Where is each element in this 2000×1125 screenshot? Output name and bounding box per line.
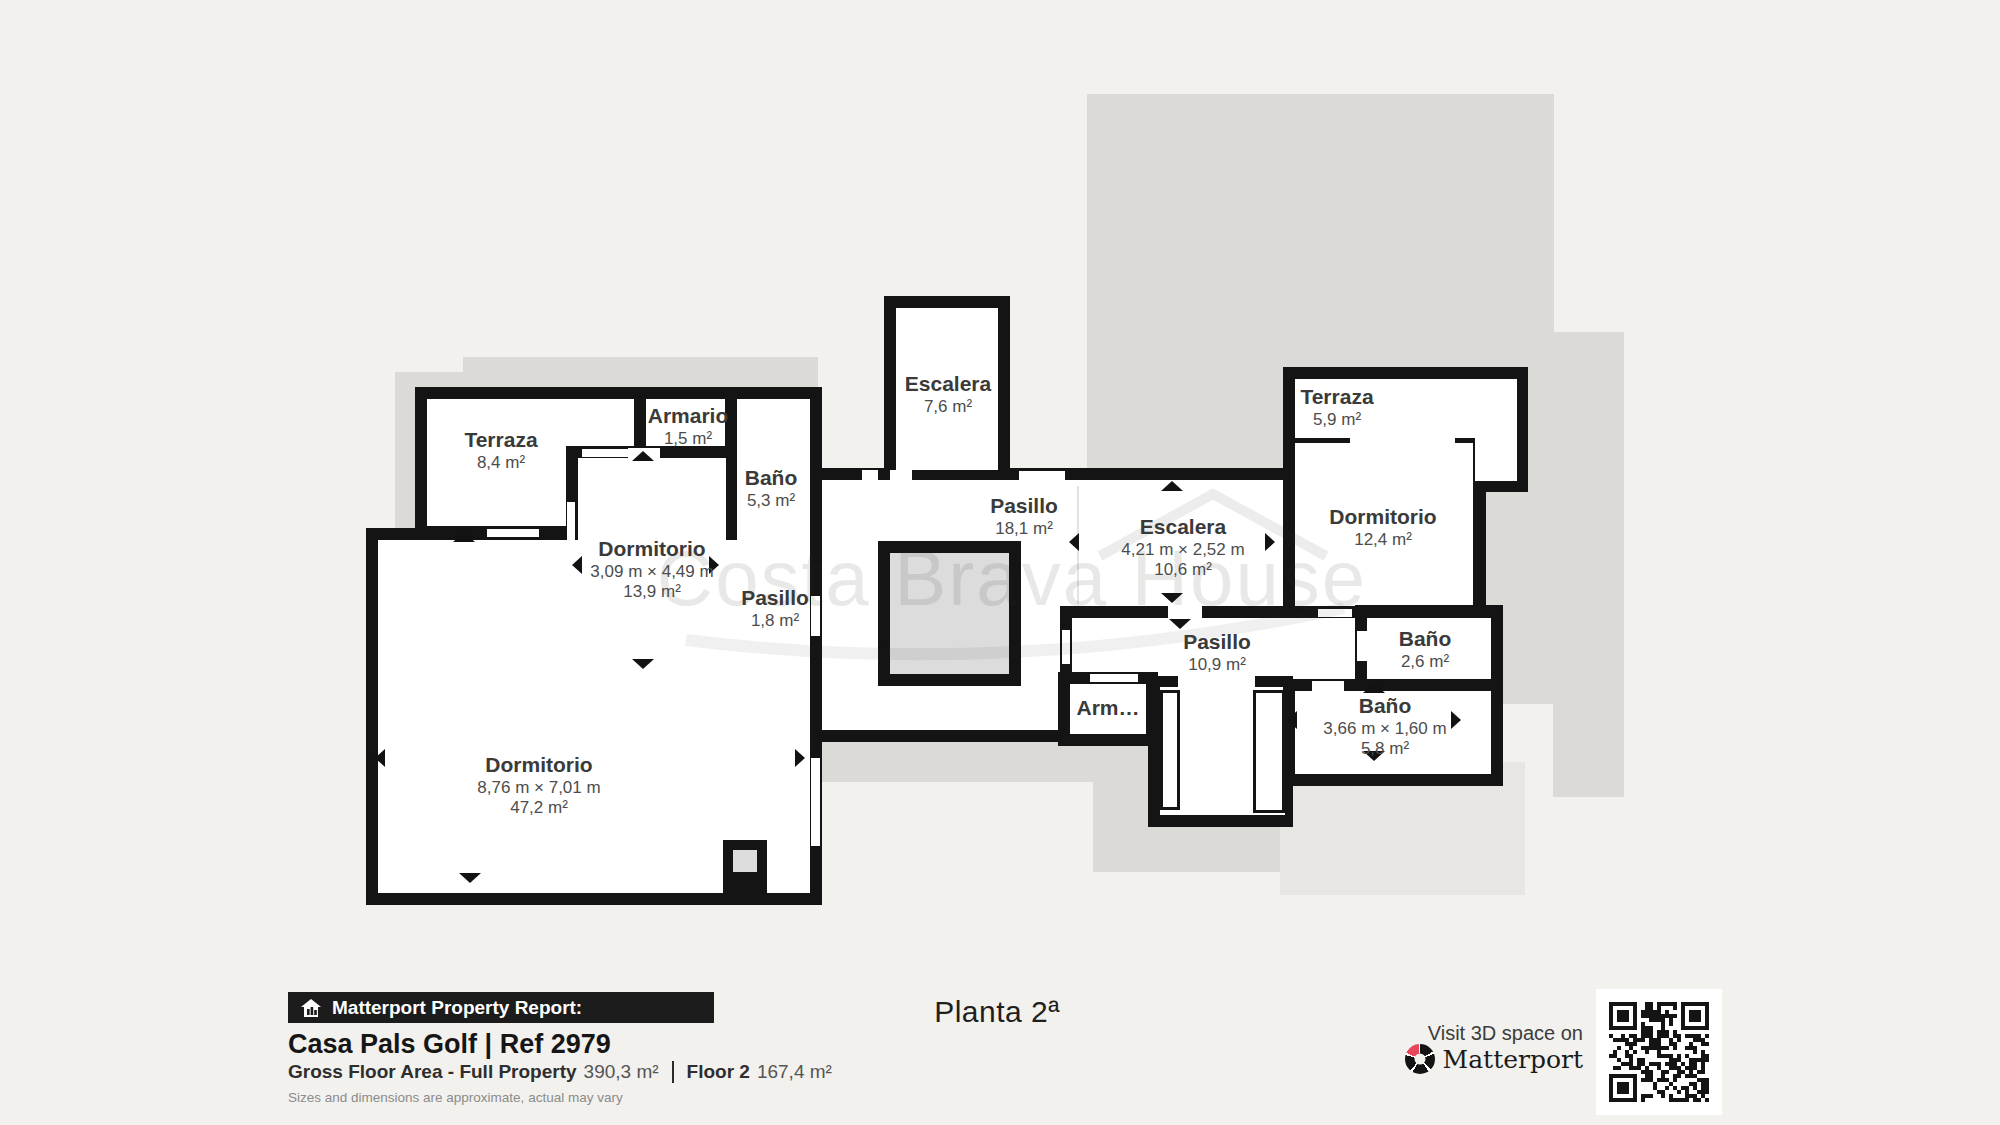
room-label-bano-right: Baño 3,66 m × 1,60 m 5,8 m²: [1323, 693, 1446, 760]
room-name: Terraza: [1300, 384, 1373, 410]
qr-module: [1661, 1094, 1665, 1098]
room-label-dormitorio-right: Dormitorio 12,4 m²: [1329, 504, 1436, 550]
room-area-value: 5,8 m²: [1323, 740, 1446, 761]
room-name: Dormitorio: [1329, 504, 1436, 530]
dimension-arrow-icon: [572, 556, 582, 574]
room-name: Baño: [745, 465, 798, 491]
door-arrow-icon: [632, 451, 654, 461]
qr-module: [1685, 1098, 1689, 1102]
door-arrow-icon: [632, 659, 654, 669]
dimension-arrow-icon: [1069, 533, 1079, 551]
matterport-logo-icon: [1405, 1044, 1435, 1074]
room-area-value: 10,9 m²: [1183, 654, 1251, 675]
room-area-value: 8,4 m²: [464, 452, 537, 473]
door-arrow-icon: [459, 873, 481, 883]
room-area-value: 7,6 m²: [905, 396, 991, 417]
room-label-pasillo-main: Pasillo 18,1 m²: [990, 493, 1058, 539]
qr-finder-icon: [1609, 1002, 1637, 1030]
closet-door-panel: [1253, 690, 1285, 813]
qr-finder-icon: [1681, 1002, 1709, 1030]
property-title: Casa Pals Golf | Ref 2979: [288, 1029, 611, 1060]
dimension-arrow-icon: [1161, 481, 1183, 491]
window-slit: [1062, 630, 1070, 664]
qr-module: [1673, 1046, 1677, 1050]
visit-3d-label: Visit 3D space on: [1380, 1022, 1583, 1045]
qr-module: [1677, 1090, 1681, 1094]
matterport-brand: Matterport: [1380, 1044, 1583, 1074]
qr-module: [1665, 1070, 1669, 1074]
floor-title: Planta 2ª: [934, 995, 1060, 1029]
floor-label: Floor 2: [687, 1061, 750, 1083]
room-name: Pasillo: [741, 585, 809, 611]
dimension-arrow-icon: [1363, 683, 1385, 693]
qr-module: [1673, 1006, 1677, 1010]
window-slit: [811, 758, 820, 846]
room-label-escalera-top: Escalera 7,6 m²: [905, 371, 991, 417]
floor-area-value: 167,4 m²: [757, 1061, 832, 1083]
door-opening: [1312, 681, 1344, 691]
room-name: Dormitorio: [477, 752, 600, 778]
room-label-pasillo-small: Pasillo 1,8 m²: [741, 585, 809, 631]
room-name: Baño: [1399, 626, 1452, 652]
room-dimensions: 4,21 m × 2,52 m: [1121, 540, 1244, 561]
matterport-wordmark: Matterport: [1443, 1045, 1583, 1074]
dimension-arrow-icon: [1287, 711, 1297, 729]
gray-underlay: [1553, 332, 1624, 797]
gross-area-value: 390,3 m²: [584, 1061, 659, 1083]
room-area-value: 1,5 m²: [648, 428, 729, 449]
dimension-arrow-icon: [1451, 711, 1461, 729]
qr-module: [1633, 1042, 1637, 1046]
room-name: Pasillo: [1183, 629, 1251, 655]
qr-module: [1617, 1066, 1621, 1070]
door-opening: [1357, 631, 1367, 661]
closet-door-panel: [1160, 690, 1180, 810]
qr-code: [1609, 1002, 1709, 1102]
door-arrow-icon: [1169, 619, 1191, 629]
door-opening: [1090, 674, 1138, 682]
qr-module: [1705, 1058, 1709, 1062]
room-area-value: 47,2 m²: [477, 799, 600, 820]
qr-module: [1673, 1078, 1677, 1082]
qr-module: [1677, 1038, 1681, 1042]
room-name: Pasillo: [990, 493, 1058, 519]
gross-area-label: Gross Floor Area - Full Property: [288, 1061, 577, 1083]
room-label-pasillo-right: Pasillo 10,9 m²: [1183, 629, 1251, 675]
matterport-house-icon: [300, 998, 322, 1018]
room-label-dormitorio-master: Dormitorio 8,76 m × 7,01 m 47,2 m²: [477, 752, 600, 819]
qr-module: [1665, 1046, 1669, 1050]
door-arrow-icon: [453, 532, 475, 542]
room-area-value: 12,4 m²: [1329, 529, 1436, 550]
report-bar-label: Matterport Property Report:: [332, 997, 582, 1019]
room-dimensions: 3,09 m × 4,49 m: [590, 562, 713, 583]
door-opening: [862, 470, 878, 480]
room-area-value: 2,6 m²: [1399, 651, 1452, 672]
qr-module: [1677, 1074, 1681, 1078]
room-name: Armario: [648, 403, 729, 429]
qr-module: [1617, 1046, 1621, 1050]
qr-module: [1673, 1014, 1677, 1018]
room-name: Baño: [1323, 693, 1446, 719]
room-area-terraza-right: [1475, 379, 1517, 481]
room-area-value: 5,9 m²: [1300, 409, 1373, 430]
room-label-escalera-central: Escalera 4,21 m × 2,52 m 10,6 m²: [1121, 514, 1244, 581]
window-slit: [386, 886, 720, 890]
report-header-bar: Matterport Property Report:: [288, 992, 714, 1023]
room-label-terraza-left: Terraza 8,4 m²: [464, 427, 537, 473]
room-label-armario-left: Armario 1,5 m²: [648, 403, 729, 449]
qr-module: [1693, 1050, 1697, 1054]
room-label-bano-left: Baño 5,3 m²: [745, 465, 798, 511]
qr-module: [1665, 1086, 1669, 1090]
room-name: Arm…: [1076, 695, 1139, 721]
window-slit: [1350, 437, 1455, 443]
disclaimer-text: Sizes and dimensions are approximate, ac…: [288, 1090, 623, 1105]
room-dimensions: 3,66 m × 1,60 m: [1323, 719, 1446, 740]
dimension-arrow-icon: [795, 749, 805, 767]
window-slit: [1019, 471, 1065, 480]
room-name: Escalera: [1121, 514, 1244, 540]
room-label-bano-small-right: Baño 2,6 m²: [1399, 626, 1452, 672]
chimney-void: [733, 850, 757, 872]
window-slit: [567, 628, 575, 676]
qr-module: [1633, 1050, 1637, 1054]
qr-module: [1705, 1034, 1709, 1038]
qr-module: [1669, 1022, 1673, 1026]
dimension-arrow-icon: [1265, 533, 1275, 551]
room-area-value: 1,8 m²: [741, 610, 809, 631]
qr-module: [1697, 1098, 1701, 1102]
qr-module: [1649, 1094, 1653, 1098]
qr-module: [1701, 1070, 1705, 1074]
room-dimensions: 8,76 m × 7,01 m: [477, 778, 600, 799]
room-area-value: 13,9 m²: [590, 583, 713, 604]
dimension-arrow-icon: [375, 749, 385, 767]
room-area-value: 18,1 m²: [990, 518, 1058, 539]
qr-module: [1705, 1090, 1709, 1094]
area-summary: Gross Floor Area - Full Property 390,3 m…: [288, 1061, 832, 1083]
qr-finder-icon: [1609, 1074, 1637, 1102]
window-slit: [567, 502, 575, 554]
room-name: Dormitorio: [590, 536, 713, 562]
room-label-dormitorio-left: Dormitorio 3,09 m × 4,49 m 13,9 m²: [590, 536, 713, 603]
room-name: Escalera: [905, 371, 991, 397]
qr-module: [1645, 1050, 1649, 1054]
room-name: Terraza: [464, 427, 537, 453]
room-area-value: 10,6 m²: [1121, 561, 1244, 582]
qr-module: [1641, 1038, 1645, 1042]
dimension-arrow-icon: [1161, 593, 1183, 603]
room-area-value: 5,3 m²: [745, 490, 798, 511]
floorplan-page: Costa Brava House Terraza 8,4 m² Armario…: [0, 0, 2000, 1125]
divider: [672, 1061, 674, 1083]
qr-module: [1705, 1042, 1709, 1046]
room-label-armario-right: Arm…: [1076, 695, 1139, 721]
door-opening: [487, 529, 539, 537]
room-label-terraza-right: Terraza 5,9 m²: [1300, 384, 1373, 430]
qr-module: [1705, 1098, 1709, 1102]
qr-module: [1641, 1098, 1645, 1102]
door-opening: [890, 470, 912, 480]
